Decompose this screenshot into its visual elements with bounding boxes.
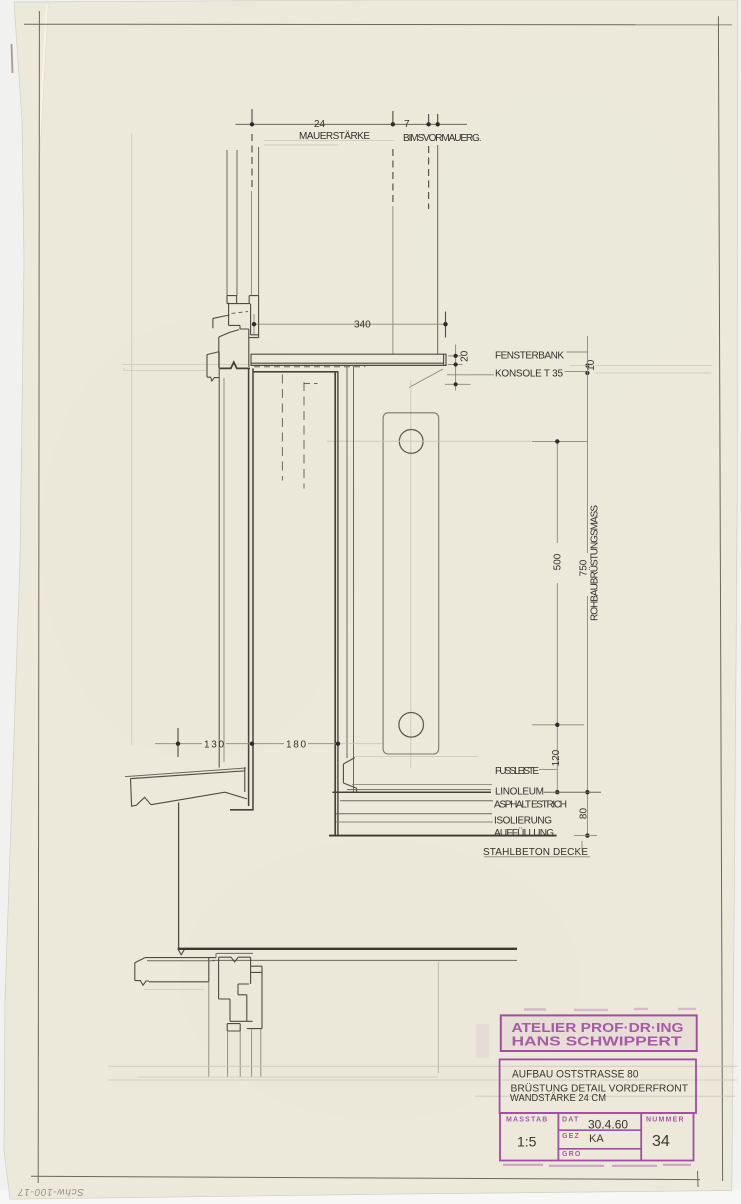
svg-text:120: 120 (551, 749, 562, 766)
svg-text:80: 80 (579, 808, 590, 820)
svg-text:GEZ: GEZ (562, 1133, 580, 1140)
svg-text:DAT: DAT (562, 1117, 579, 1124)
svg-text:130: 130 (204, 740, 224, 751)
svg-text:ATELIER PROF·DR·ING: ATELIER PROF·DR·ING (512, 1021, 684, 1035)
svg-text:WANDSTÄRKE 24 CM: WANDSTÄRKE 24 CM (510, 1092, 606, 1104)
svg-text:BIMSVORMAUERG.: BIMSVORMAUERG. (403, 133, 482, 144)
svg-text:KA: KA (589, 1133, 604, 1145)
svg-text:ROHBAUBRÜSTUNGSMASS: ROHBAUBRÜSTUNGSMASS (589, 505, 601, 621)
svg-text:34: 34 (652, 1133, 670, 1150)
svg-text:1:5: 1:5 (517, 1134, 537, 1150)
svg-text:ASPHALT ESTRICH: ASPHALT ESTRICH (494, 799, 567, 810)
svg-text:FUSSLEISTE: FUSSLEISTE (495, 766, 539, 777)
svg-text:340: 340 (354, 320, 371, 331)
svg-text:20: 20 (459, 350, 470, 362)
svg-text:7: 7 (404, 119, 410, 130)
svg-text:500: 500 (553, 553, 564, 570)
svg-text:ISOLIERUNG: ISOLIERUNG (494, 816, 552, 827)
svg-text:AUFFÜLLUNG: AUFFÜLLUNG (494, 827, 554, 839)
svg-text:HANS SCHWIPPERT: HANS SCHWIPPERT (512, 1035, 682, 1049)
svg-text:24: 24 (314, 119, 326, 130)
svg-text:LINOLEUM: LINOLEUM (495, 786, 544, 797)
svg-text:AUFBAU OSTSTRASSE 80: AUFBAU OSTSTRASSE 80 (512, 1069, 639, 1081)
svg-text:GRO: GRO (562, 1151, 582, 1158)
svg-text:Schw-100-17: Schw-100-17 (17, 1186, 84, 1197)
svg-text:FENSTERBANK: FENSTERBANK (495, 351, 564, 362)
svg-text:KONSOLE T 35: KONSOLE T 35 (495, 369, 563, 380)
svg-text:NUMMER: NUMMER (646, 1117, 685, 1124)
svg-text:180: 180 (286, 740, 306, 751)
svg-text:MAUERSTÄRKE: MAUERSTÄRKE (299, 130, 370, 142)
svg-text:MASSTAB: MASSTAB (506, 1117, 549, 1124)
svg-text:750: 750 (578, 559, 589, 576)
svg-text:30.4.60: 30.4.60 (588, 1118, 628, 1132)
svg-text:STAHLBETON DECKE: STAHLBETON DECKE (483, 847, 588, 858)
